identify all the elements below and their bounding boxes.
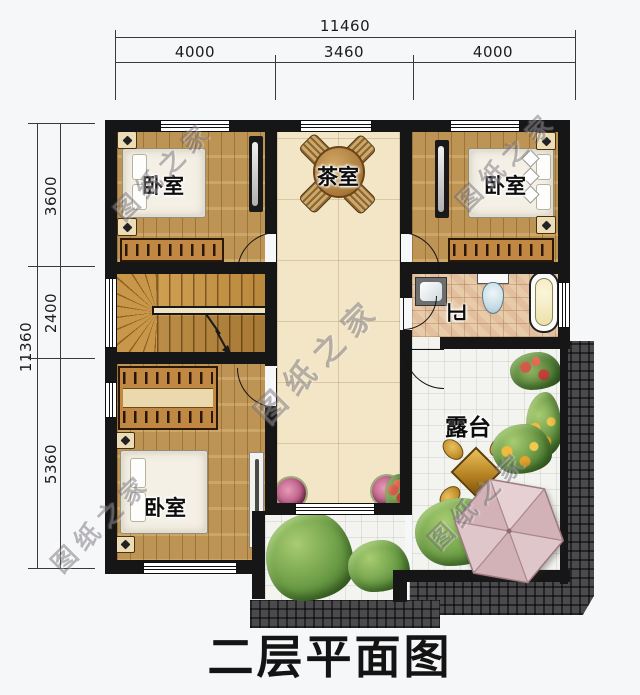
dim-left-seg-1: 3600 — [42, 156, 60, 236]
dim-top-tick-1 — [115, 30, 116, 100]
dim-top-tick-3 — [413, 55, 414, 100]
label-bathroom: 卫 — [444, 299, 473, 327]
bathtub — [529, 271, 559, 333]
window-bottom-bedroom-bl — [143, 562, 237, 574]
hanger-rail — [125, 244, 219, 256]
dim-top-seg-1: 4000 — [160, 43, 230, 61]
window-hall-balcony — [295, 503, 375, 515]
window-left-bedroom-bl — [105, 382, 117, 418]
wall-bathroom-bottom — [440, 337, 570, 349]
stairs-winder — [117, 274, 157, 354]
dim-left-seg-2: 2400 — [42, 273, 60, 353]
window-top-tea-room — [300, 120, 372, 132]
hanger-rail — [123, 411, 213, 423]
bathtub-basin — [535, 278, 553, 326]
floor-terrace-threshold — [412, 337, 440, 349]
dim-left-tick-2 — [28, 266, 95, 267]
wardrobe-top-left — [120, 238, 224, 262]
dim-left-line-outer — [37, 123, 38, 568]
nightstand — [536, 216, 556, 234]
dim-top-line-inner — [115, 62, 575, 63]
nightstand — [115, 536, 135, 553]
wall-balcony-left — [252, 511, 265, 599]
dim-left-seg-3: 5360 — [42, 424, 60, 504]
wardrobe-shelf — [123, 388, 213, 408]
label-terrace: 露台 — [418, 408, 518, 442]
wall-stairs-bottom — [105, 352, 277, 364]
hanger-rail — [123, 372, 213, 384]
dim-left-total: 11360 — [17, 307, 35, 387]
nightstand — [117, 131, 137, 149]
dim-top-line-outer — [115, 37, 575, 38]
plant-terrace-top — [510, 352, 562, 390]
dim-top-total: 11460 — [305, 17, 385, 35]
wall-tea-right — [400, 120, 412, 234]
plant-balcony-left — [266, 513, 354, 601]
wall-tea-left — [265, 120, 277, 234]
dim-top-seg-2: 3460 — [309, 43, 379, 61]
dim-left-tick-3 — [28, 358, 95, 359]
wardrobe-bottom-left — [118, 366, 218, 430]
wardrobe-top-right — [448, 238, 554, 262]
dim-top-seg-3: 4000 — [458, 43, 528, 61]
wall-balcony-stub — [393, 570, 407, 602]
cabinet-top-left — [249, 136, 263, 212]
floor-plan-canvas: 11460 4000 3460 4000 11360 3600 2400 536… — [0, 0, 640, 695]
window-left-stairs — [105, 278, 117, 348]
plan-title: 二层平面图 — [20, 621, 640, 687]
label-tea-room: 茶室 — [288, 161, 388, 191]
nightstand — [115, 432, 135, 449]
dim-top-tick-2 — [275, 55, 276, 100]
dim-left-tick-1 — [28, 123, 95, 124]
dim-left-line-inner — [60, 123, 61, 568]
window-right-bathroom — [558, 282, 570, 328]
hanger-rail — [453, 244, 549, 256]
